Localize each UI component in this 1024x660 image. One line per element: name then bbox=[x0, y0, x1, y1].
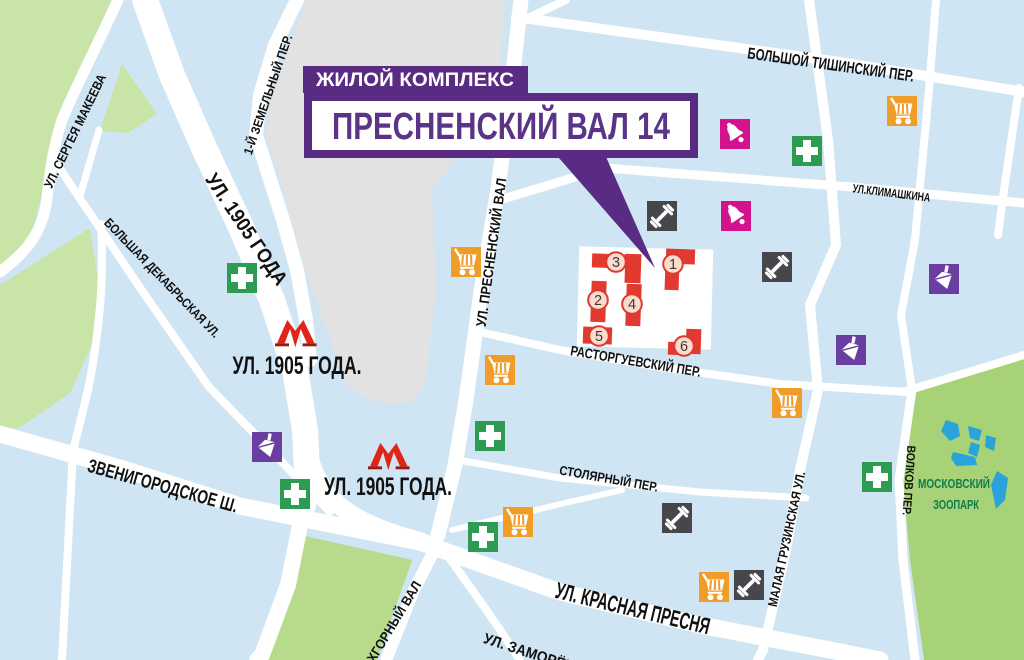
svg-text:УЛ. 1905 ГОДА.: УЛ. 1905 ГОДА. bbox=[324, 473, 452, 501]
svg-text:ПРЕСНЕНСКИЙ ВАЛ 14: ПРЕСНЕНСКИЙ ВАЛ 14 bbox=[332, 103, 670, 148]
svg-text:5: 5 bbox=[595, 329, 603, 345]
svg-text:2: 2 bbox=[594, 293, 602, 309]
svg-text:МОСКОВСКИЙ: МОСКОВСКИЙ bbox=[918, 476, 990, 491]
svg-text:3: 3 bbox=[612, 255, 620, 271]
svg-text:4: 4 bbox=[628, 297, 636, 313]
svg-text:1: 1 bbox=[669, 257, 677, 273]
svg-text:ЗООПАРК: ЗООПАРК bbox=[933, 498, 979, 512]
svg-text:ЖИЛОЙ КОМПЛЕКС: ЖИЛОЙ КОМПЛЕКС bbox=[315, 69, 514, 91]
svg-text:6: 6 bbox=[680, 339, 688, 355]
svg-text:УЛ. 1905 ГОДА.: УЛ. 1905 ГОДА. bbox=[233, 352, 362, 380]
